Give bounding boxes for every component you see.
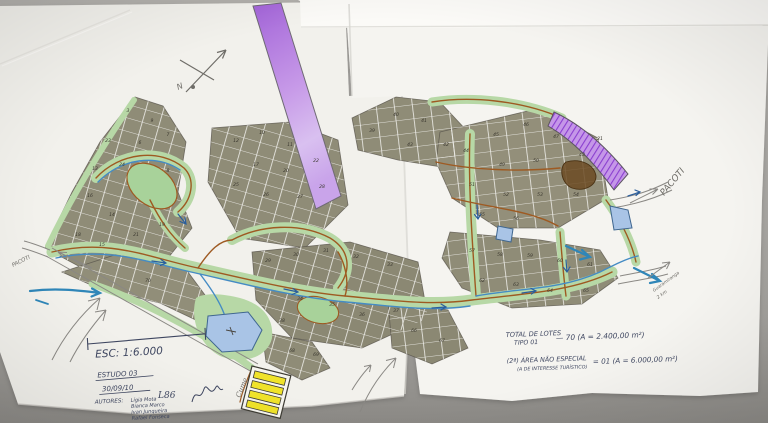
- lot-number: 62: [479, 278, 485, 284]
- lot-number: 3: [127, 108, 130, 114]
- lot-number: 45: [493, 132, 499, 138]
- lot-number: 31: [323, 248, 329, 254]
- lot-number: 25: [233, 182, 239, 188]
- lot-number: 47: [553, 134, 559, 140]
- totals-line1-sub: TIPO 01: [514, 339, 538, 347]
- lot-number: 21: [133, 232, 139, 238]
- lot-number: 50: [533, 158, 539, 164]
- lot-number: 64: [547, 288, 553, 294]
- lot-number: 57: [469, 248, 475, 254]
- lot-number: 54: [573, 192, 579, 198]
- lot-number: 61: [587, 262, 593, 268]
- lot-number: 10: [259, 130, 265, 136]
- lot-number: 68: [289, 348, 295, 354]
- lot-number: 33: [387, 262, 393, 268]
- paper-strip-top: [300, 0, 768, 28]
- lot-number: 41: [421, 118, 427, 124]
- lot-number: 23: [105, 138, 111, 144]
- lot-number: 42: [443, 142, 449, 148]
- lot-number: 40: [393, 112, 399, 118]
- lot-number: 58: [497, 252, 503, 258]
- lot-number: 46: [523, 122, 529, 128]
- lot-number: 60: [557, 258, 563, 264]
- lot-number: 26: [263, 192, 269, 198]
- lot-number: 29: [265, 258, 271, 264]
- lot-number: 43: [407, 142, 413, 148]
- lot-number: 13: [92, 166, 98, 172]
- lot-number: 51: [469, 182, 475, 188]
- lot-number: 37: [393, 308, 399, 314]
- lot-number: 52: [503, 192, 509, 198]
- lot-number: 70: [145, 278, 151, 284]
- lot-number: 55: [479, 212, 485, 218]
- lot-number: 39: [369, 128, 375, 134]
- lot-number: 53: [537, 192, 543, 198]
- lot-number: 63: [513, 282, 519, 288]
- lot-number: 7: [167, 132, 170, 138]
- lot-number: 48: [579, 152, 585, 158]
- lot-number: 38: [279, 318, 285, 324]
- lot-number: 59: [527, 253, 533, 259]
- lot-number: 19: [159, 222, 165, 228]
- lot-number: 21: [597, 136, 603, 142]
- lot-number: 56: [513, 216, 519, 222]
- lot-number: 6: [139, 140, 142, 146]
- lot-number: 66: [411, 328, 417, 334]
- lot-number: 69: [313, 352, 319, 358]
- lot-number: 17: [253, 162, 259, 168]
- lot-number: 28: [319, 184, 325, 190]
- lot-number: 11: [287, 142, 293, 148]
- site-plan-svg: 3923671324816141815211912101117202225262…: [0, 0, 768, 423]
- lot-number: 16: [87, 193, 93, 199]
- lot-number: 27: [297, 194, 303, 200]
- lot-number: 67: [439, 338, 445, 344]
- lot-number: 12: [233, 138, 239, 144]
- lot-number: 20: [283, 168, 289, 174]
- lot-number: 35: [329, 302, 335, 308]
- lot-number: 24: [119, 162, 125, 168]
- lot-number: 32: [353, 254, 359, 260]
- lot-number: 49: [499, 162, 505, 168]
- lot-number: 34: [297, 296, 303, 302]
- lot-number: 8: [167, 168, 170, 174]
- scanned-sketch-photo: 3923671324816141815211912101117202225262…: [0, 0, 768, 423]
- lot-number: 65: [583, 288, 589, 294]
- water-lot: [496, 226, 513, 242]
- lot-number: 15: [99, 242, 105, 248]
- lot-number: 30: [293, 252, 299, 258]
- lot-number: 9: [151, 118, 154, 124]
- lot-number: 22: [313, 158, 319, 164]
- lot-number: 44: [463, 148, 469, 154]
- lot-number: 14: [109, 212, 115, 218]
- lot-number: 36: [359, 312, 365, 318]
- lot-number: 18: [75, 232, 81, 238]
- initials-mark: L86: [157, 391, 176, 401]
